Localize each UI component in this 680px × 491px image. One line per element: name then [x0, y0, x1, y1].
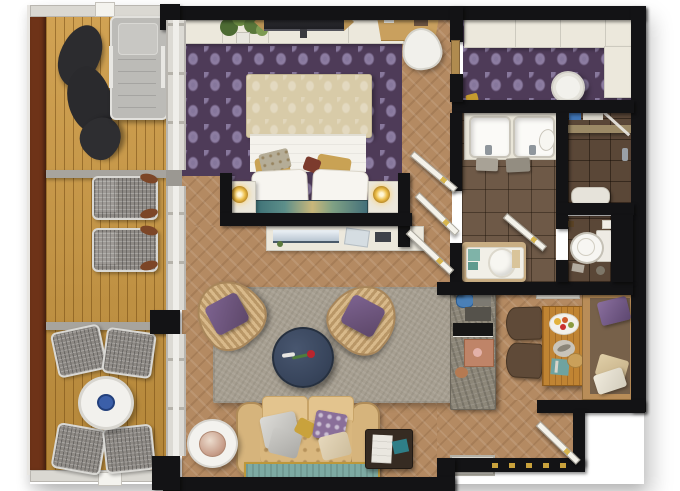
wall-bath-bottom: [437, 282, 633, 295]
round-coffee-table: [272, 327, 334, 388]
coffee-cup: [473, 348, 482, 357]
toilet-seat: [577, 238, 595, 256]
bedroom-sliding-glass: [166, 20, 186, 170]
coffee-machine: [464, 339, 494, 367]
closet-wardrobe-top: [464, 18, 634, 48]
wall-wc-left-upper: [556, 215, 568, 229]
sun-lounger-arm-right: [161, 46, 165, 88]
sun-lounger-arm-left: [109, 46, 113, 88]
toilet: [570, 228, 612, 264]
outdoor-chair-tr: [101, 327, 157, 380]
sun-lounger-slats: [118, 58, 156, 108]
side-table: [187, 419, 238, 468]
gold-lamp-right: [373, 186, 390, 203]
plant-pot: [236, 32, 250, 44]
wall-dining-bottom: [537, 400, 645, 413]
living-sliding-glass-lower: [166, 334, 186, 456]
deck-lounge-chair-1: [92, 176, 158, 220]
vanity-towel: [476, 158, 498, 172]
luggage-bench: [365, 429, 413, 469]
wall-headboard: [220, 213, 412, 226]
vanity-towel: [506, 157, 531, 172]
wc-brush: [596, 266, 605, 275]
console-tv: [273, 230, 339, 243]
console-cards: [344, 227, 370, 247]
glass-mullion: [166, 170, 182, 186]
deck-left-rail: [30, 14, 47, 472]
rose-bud: [307, 350, 315, 358]
wall-bed-pier-left: [220, 173, 232, 215]
armrest-wood: [139, 259, 159, 272]
kettle: [456, 293, 474, 308]
food-platter: [549, 313, 579, 335]
food: [562, 317, 568, 323]
console-plant-dot: [277, 241, 283, 247]
wall-bath-left-upper: [450, 113, 462, 191]
wall-bedroom-closet-b: [450, 74, 463, 102]
deck-divider-lower: [46, 322, 166, 330]
wall-shower-wc: [556, 203, 634, 215]
deck-top-post: [95, 2, 115, 17]
double-vanity: [464, 112, 558, 160]
dining-chair: [505, 306, 543, 340]
bath-tray: [512, 250, 520, 268]
deck-lounge-chair-2: [92, 228, 158, 272]
blue-bowl: [97, 394, 115, 411]
teal-folder: [392, 439, 409, 455]
copper-pot: [455, 367, 468, 378]
threshold-gold-trim: [492, 463, 566, 468]
table-lamp: [199, 431, 226, 457]
wall-wc-left-lower: [556, 260, 568, 282]
bathtub: [462, 242, 526, 282]
dining-table: [542, 306, 585, 386]
wall-vanity-shower: [556, 113, 568, 205]
living-sliding-glass-upper: [166, 186, 186, 310]
outdoor-chair-bl: [50, 422, 107, 476]
closet-passage-door: [451, 40, 460, 78]
faucet-right: [529, 145, 536, 155]
mint-towel: [468, 262, 478, 270]
counter-shelf-gap: [453, 323, 493, 337]
sun-lounger: [110, 16, 168, 120]
shower-soap-dish: [569, 113, 581, 120]
armrest-wood: [139, 207, 159, 220]
food: [560, 324, 566, 330]
folded-towel: [371, 434, 392, 463]
closet-wardrobe-right: [604, 46, 634, 98]
mint-towel: [468, 249, 480, 261]
counter-tray-dark: [465, 307, 491, 321]
wall-closet-bath: [452, 100, 634, 113]
shower-head: [622, 148, 628, 161]
bed-duvet: [246, 74, 372, 138]
outdoor-chair-br: [102, 424, 157, 475]
fork: [554, 361, 558, 373]
chair-back-shade: [96, 232, 116, 264]
sun-lounger-backrest: [118, 23, 158, 55]
wall-living-bottom: [163, 477, 455, 491]
wall-bedroom-closet-a: [450, 6, 463, 42]
fish: [556, 343, 571, 353]
kitchen-counter: [450, 290, 496, 410]
wall-top: [163, 6, 645, 20]
deck-bottom-post: [98, 472, 122, 486]
food: [568, 322, 574, 328]
dining-bench: [582, 292, 634, 400]
wall-tv-stand: [300, 29, 307, 38]
console-box: [375, 232, 391, 242]
faucet-left: [485, 145, 492, 155]
floor-plan-scene: [0, 0, 680, 491]
wall-left-pier: [150, 310, 180, 334]
counter-tray: [473, 294, 491, 306]
shower-tray: [583, 113, 603, 120]
wall-wc-right-block: [611, 215, 633, 282]
gold-lamp-left: [231, 186, 248, 203]
chair-back-shade: [96, 180, 116, 212]
wall-bottomleft-block: [152, 456, 180, 490]
dining-chair: [505, 342, 544, 379]
